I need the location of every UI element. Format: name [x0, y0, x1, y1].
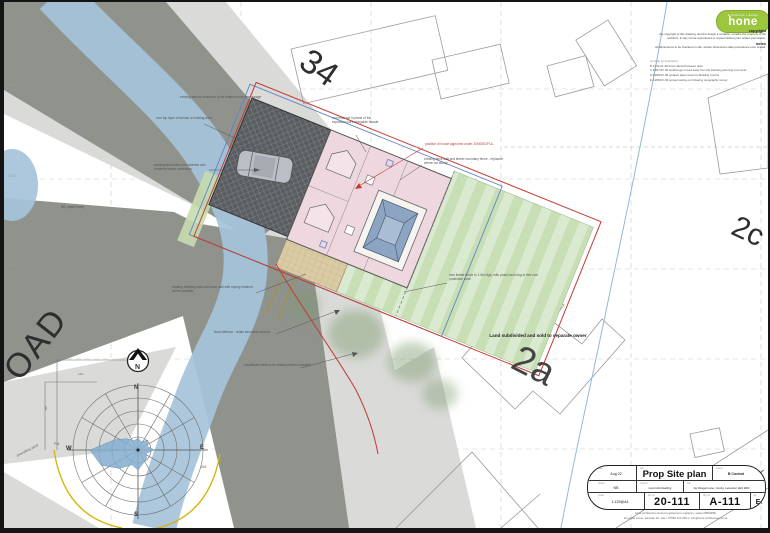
drawing-number: A-111 [709, 494, 740, 508]
annotation: existing retaining wall and stone wall w… [172, 285, 256, 293]
annotation: flood defence - retain structures around [214, 330, 286, 334]
project-label: project [640, 482, 648, 485]
site-cell: site 2a Chapel Lane, Cosby, Leicester LE… [684, 481, 765, 492]
date-value: Aug 22 [610, 470, 621, 476]
revision-cell: rev E [751, 493, 765, 509]
status-label: status [716, 467, 723, 470]
copyright-body: the copyright of this drawing, and the d… [654, 33, 766, 40]
annotation: roof pitch set in plane of the expansion… [332, 116, 382, 124]
scale-label: scale [598, 494, 604, 497]
revision-row: E 24/08/23 JM revised setting out follow… [650, 79, 770, 83]
dim-width-label: 14m [78, 373, 84, 377]
drawing-sheet: 580 570 560 34 2a 2c OAD Land subdivided… [0, 0, 770, 533]
scale-cell: scale 1:125@A4 [588, 493, 645, 509]
rose-north: N [134, 385, 138, 393]
red-annotation: position of house approved under 20/0056… [425, 142, 525, 146]
practice-footer-line2: 10 poplar street, leicester le1 1aa t: 0… [587, 516, 764, 520]
scale-value: 1:125@A4 [611, 498, 628, 504]
drawn-label: drawn [598, 482, 605, 485]
drawn-value: NB [614, 484, 619, 490]
date-label: date [598, 467, 603, 470]
job-number-cell: job no 20-111 [645, 493, 700, 509]
am-label: AM [201, 465, 206, 470]
practice-footer-line1: hone architecture limited registered in … [587, 511, 764, 515]
pm-label: PM [54, 442, 59, 447]
title-label: title [640, 467, 644, 470]
drawing-title-cell: title Prop Site plan [637, 466, 713, 480]
rose-east: E [200, 445, 204, 453]
grid-label-560: 560 [9, 262, 16, 267]
logo-brand: hone [717, 17, 769, 29]
drawing-number-cell: drg no A-111 [700, 493, 751, 509]
rose-south: S [134, 512, 138, 520]
project-cell: project new build dwelling [637, 481, 684, 492]
rev-value: E [756, 497, 761, 506]
status-cell: status B Control [713, 466, 765, 480]
annotation: existing brick wall to be retained and r… [154, 163, 212, 171]
north-symbol-label: N [135, 363, 140, 372]
grid-label-580: 580 [9, 82, 16, 87]
annotation: new top layer of tarmac to existing driv… [156, 116, 218, 120]
copyright-notes-block: copyright the copyright of this drawing,… [654, 29, 766, 50]
notes-body: All dimensions to be checked on site, wr… [654, 46, 766, 50]
rose-west: W [66, 446, 72, 454]
job-label: job no [648, 494, 655, 497]
drawn-cell: drawn NB [588, 481, 637, 492]
drawing-title: Prop Site plan [643, 467, 707, 480]
site-value: 2a Chapel Lane, Cosby, Leicester LE9 1RD [694, 484, 750, 490]
annotation: established trees to be retained where p… [244, 363, 339, 367]
date-cell: date Aug 22 [588, 466, 637, 480]
project-value: new build dwelling [649, 484, 672, 490]
annotation: existing tarmac crossover to be retained… [180, 95, 268, 99]
rev-label: rev [753, 494, 756, 497]
grid-label-570: 570 [9, 173, 16, 178]
revision-table: rev date by description B 17/11/22 JM fe… [650, 59, 770, 84]
job-number: 20-111 [654, 494, 690, 508]
site-label: site [687, 482, 691, 485]
dim-height-label: 8m [45, 406, 49, 410]
annotation: WL (water level) [61, 205, 106, 209]
drg-label: drg no [703, 494, 710, 497]
title-block: date Aug 22 title Prop Site plan status … [587, 465, 766, 510]
land-subdivided-note: Land subdivided and sold to separate own… [472, 333, 604, 339]
annotation: new timber fence to 1.8m high, with post… [449, 273, 544, 281]
status-value: B Control [728, 470, 744, 476]
revision-header: rev date by description [650, 59, 770, 63]
annotation: existing brick wall and timber boundary … [424, 157, 504, 165]
